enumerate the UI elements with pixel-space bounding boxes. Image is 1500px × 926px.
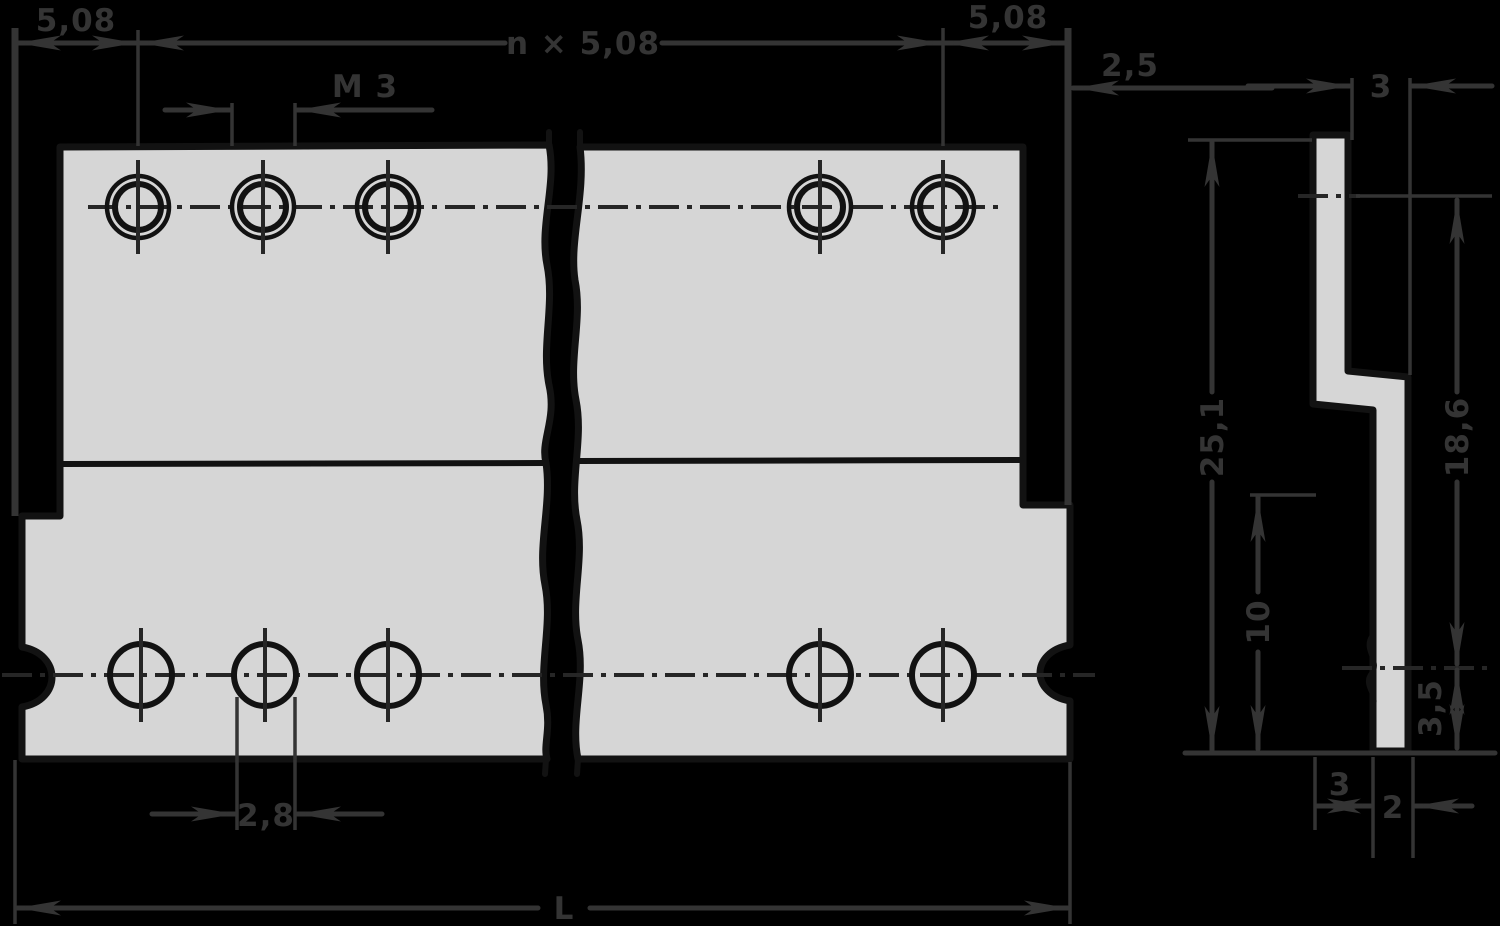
- dim-thread-value: M 3: [332, 69, 398, 105]
- dim-row-spacing-value: 18,6: [1440, 397, 1476, 478]
- front-view: 5,08 n × 5,08 5,08 2,5 M 3: [2, 0, 1272, 926]
- dim-thread: M 3: [165, 69, 432, 146]
- dim-lower-thickness-value: 2: [1382, 790, 1405, 826]
- dim-lower-leg-height-value: 10: [1241, 599, 1277, 644]
- dim-pitch-left-value: 5,08: [36, 3, 117, 39]
- drawing-canvas: 5,08 n × 5,08 5,08 2,5 M 3: [0, 0, 1500, 926]
- dim-hole-to-edge-value: 3,5: [1413, 679, 1449, 737]
- dim-hole-to-edge: 3,5: [1413, 670, 1465, 748]
- dim-overall-length-value: L: [554, 891, 575, 926]
- dim-upper-thickness-value: 3: [1370, 69, 1393, 105]
- dim-overall-height-value: 25,1: [1195, 397, 1231, 478]
- dim-hole-diameter-value: 2,8: [237, 798, 295, 834]
- dim-pitch-left: 5,08: [17, 3, 136, 51]
- dim-pitch-total: n × 5,08: [140, 26, 941, 62]
- bend-edge-right: [579, 460, 1020, 461]
- technical-drawing: 5,08 n × 5,08 5,08 2,5 M 3: [0, 0, 1500, 926]
- dim-pitch-right: 5,08: [945, 0, 1066, 51]
- bend-edge-left: [63, 463, 545, 464]
- dim-pitch-total-value: n × 5,08: [506, 26, 660, 62]
- dim-overall-height: 25,1: [1195, 142, 1231, 750]
- dim-pitch-right-value: 5,08: [968, 0, 1049, 36]
- dim-overall-length: L: [15, 760, 1070, 926]
- dim-end-offset: 2,5: [1073, 48, 1272, 96]
- side-view: 3 25,1 10 18,6 3,5: [1185, 69, 1495, 858]
- dim-lower-leg-height: 10: [1241, 497, 1277, 749]
- dim-step-depth-value: 3: [1329, 767, 1352, 803]
- side-profile: [1313, 135, 1408, 751]
- dim-end-offset-value: 2,5: [1101, 48, 1159, 84]
- dim-row-spacing: 18,6: [1440, 200, 1476, 666]
- dim-lower-thickness: 2: [1382, 790, 1472, 826]
- plate-left-piece: [22, 145, 551, 759]
